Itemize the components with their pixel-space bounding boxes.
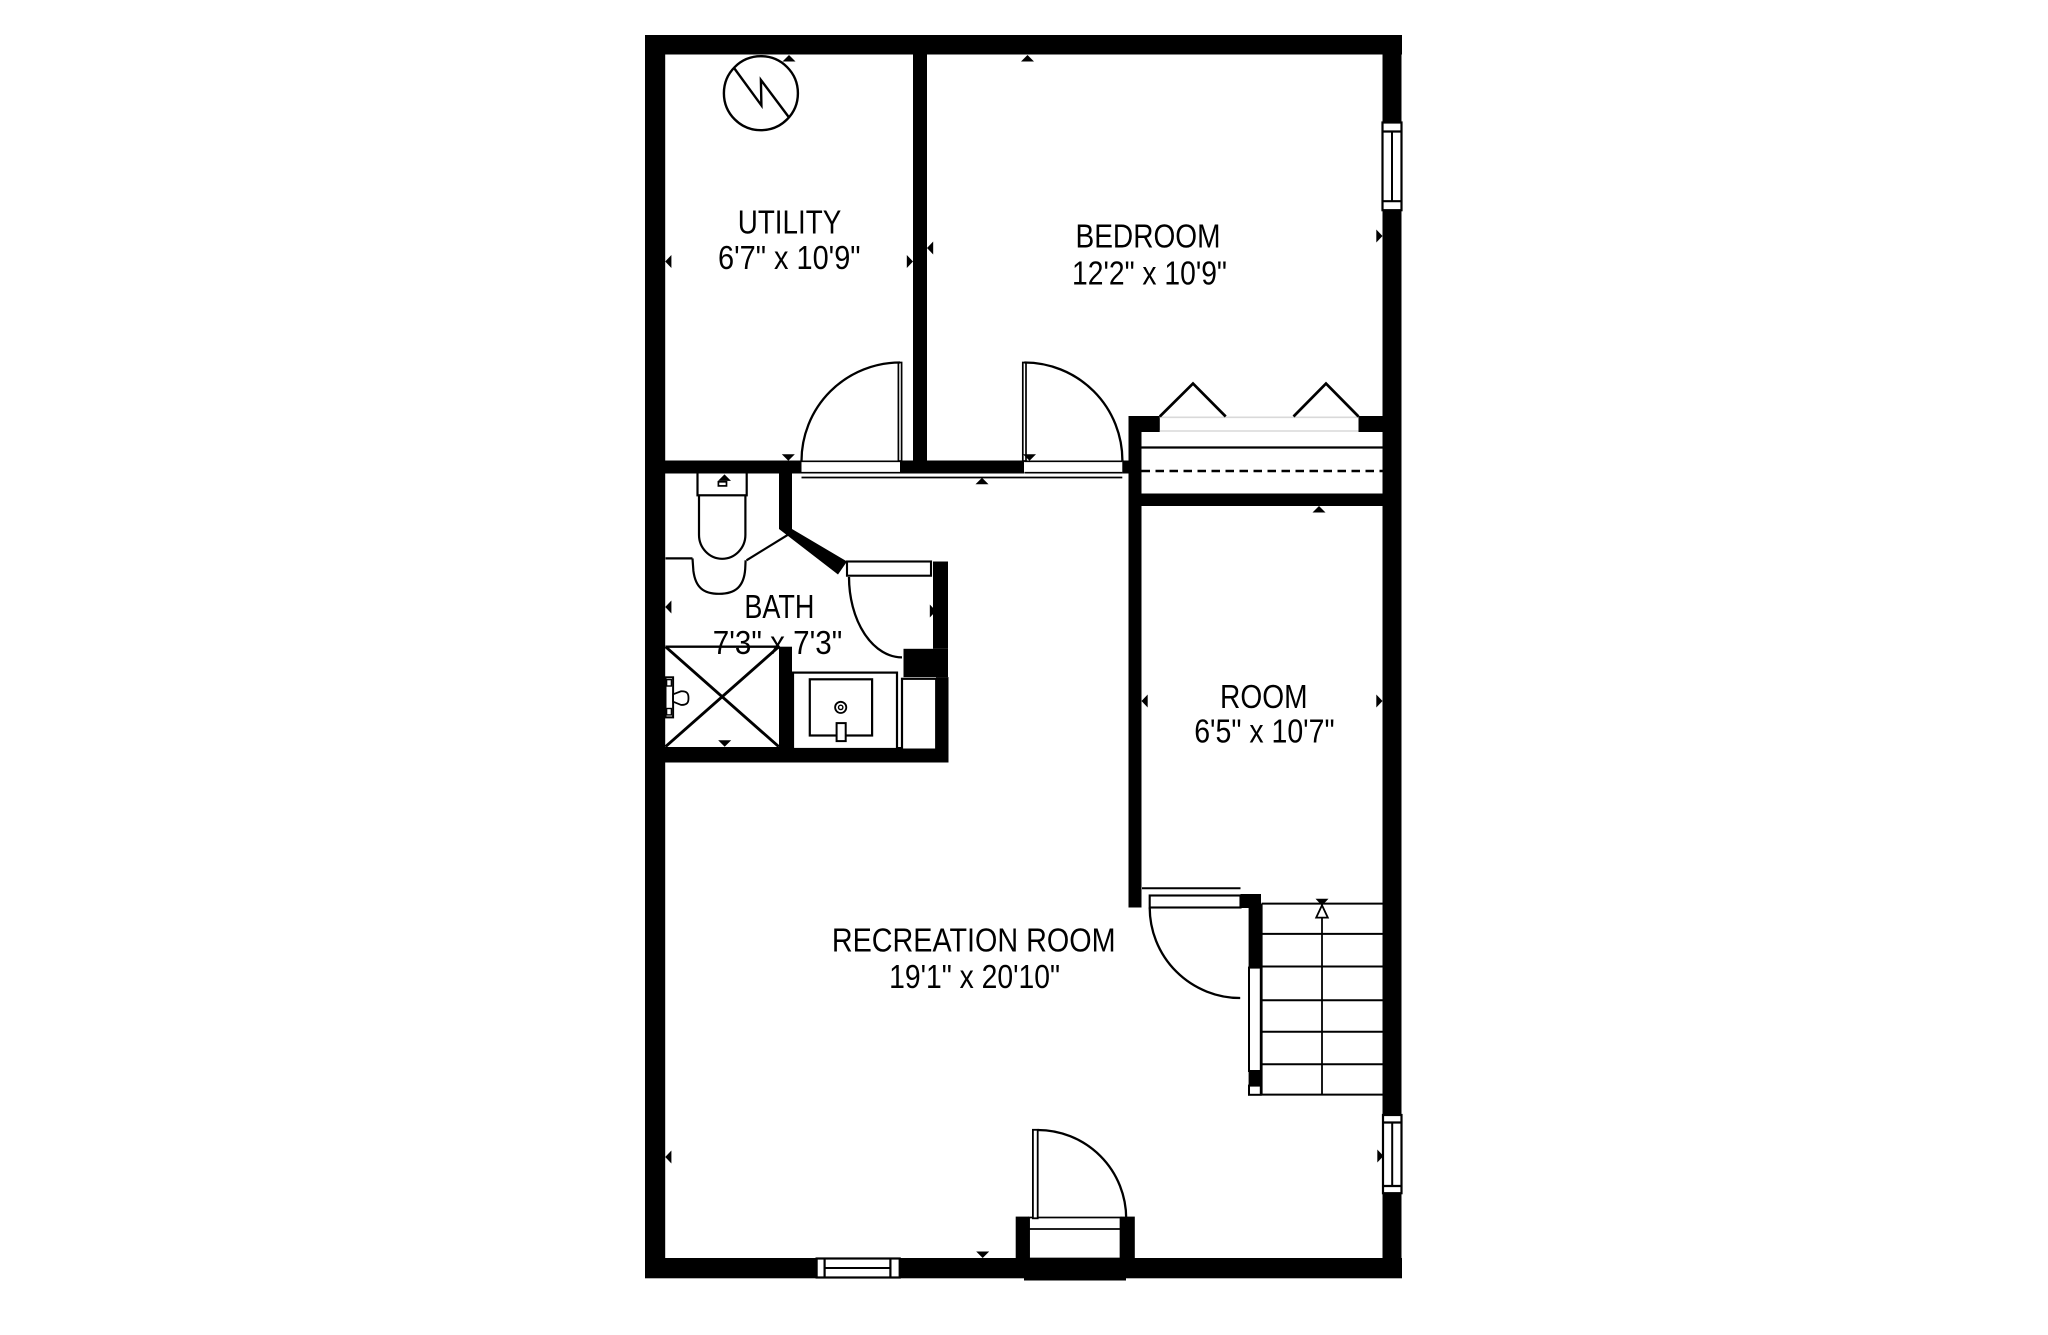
svg-text:RECREATION ROOM: RECREATION ROOM bbox=[832, 922, 1116, 959]
svg-text:7'3" x 7'3": 7'3" x 7'3" bbox=[713, 624, 843, 661]
svg-text:BEDROOM: BEDROOM bbox=[1076, 218, 1221, 255]
svg-text:ROOM: ROOM bbox=[1220, 678, 1308, 715]
svg-text:12'2" x 10'9": 12'2" x 10'9" bbox=[1072, 255, 1227, 292]
svg-text:6'7" x 10'9": 6'7" x 10'9" bbox=[718, 239, 861, 276]
svg-text:BATH: BATH bbox=[744, 588, 814, 625]
svg-text:UTILITY: UTILITY bbox=[738, 204, 842, 241]
svg-text:6'5" x 10'7": 6'5" x 10'7" bbox=[1194, 713, 1334, 750]
svg-text:19'1" x 20'10": 19'1" x 20'10" bbox=[889, 958, 1060, 995]
